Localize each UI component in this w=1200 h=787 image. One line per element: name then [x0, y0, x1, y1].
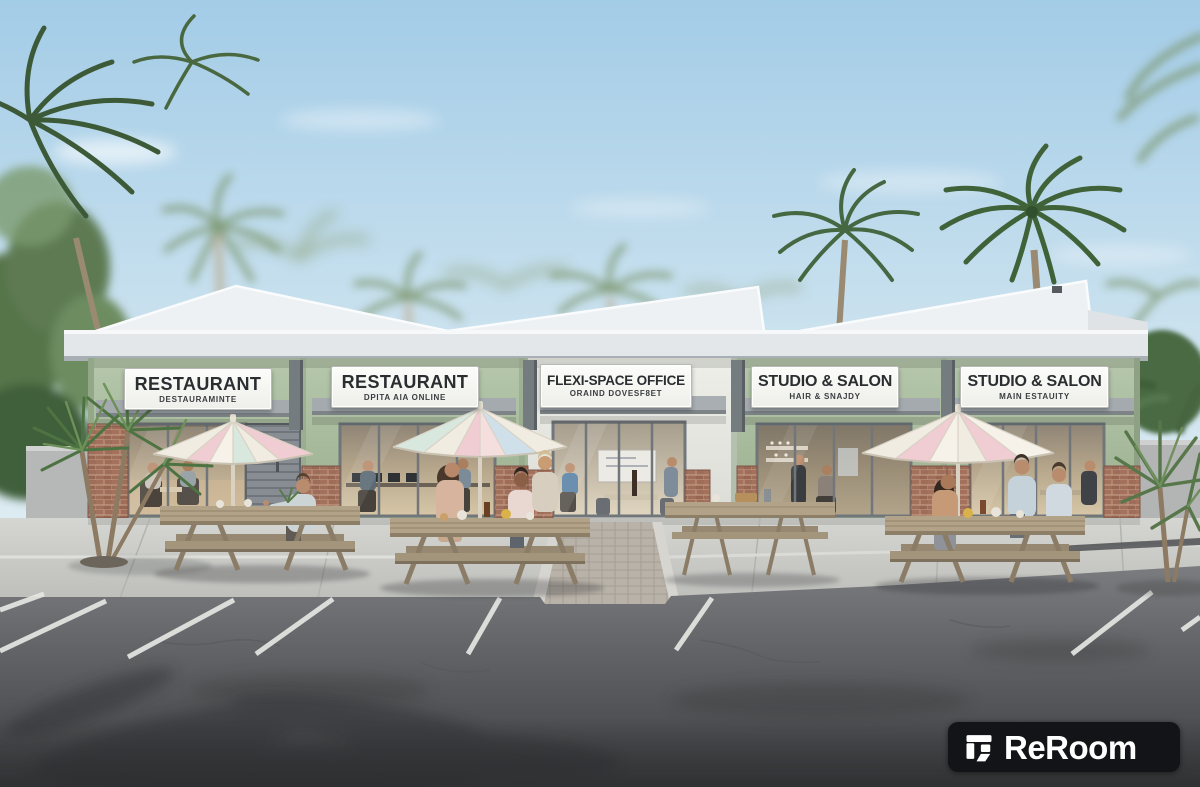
strip-mall-exterior-render: RESTAURANT DESTAURAMINTE RESTAURANT DPIT…: [0, 0, 1200, 787]
watermark-label: ReRoom: [1004, 731, 1137, 764]
sign-title: RESTAURANT: [135, 375, 262, 393]
storefront-sign-flexi-space-office: FLEXI-SPACE OFFICE ORAIND DOVESF8ET: [540, 364, 692, 408]
storefront-sign-restaurant-1: RESTAURANT DESTAURAMINTE: [124, 368, 272, 410]
sign-subtitle: DESTAURAMINTE: [159, 396, 237, 404]
sign-title: FLEXI-SPACE OFFICE: [547, 374, 685, 388]
storefront-sign-studio-salon-1: STUDIO & SALON HAIR & SNAJDY: [751, 366, 899, 408]
sign-title: STUDIO & SALON: [758, 374, 892, 390]
sign-subtitle: MAIN ESTAUITY: [999, 393, 1070, 401]
sign-title: RESTAURANT: [342, 373, 469, 391]
sign-subtitle: DPITA AIA ONLINE: [364, 394, 446, 402]
sign-subtitle: HAIR & SNAJDY: [789, 393, 860, 401]
sign-subtitle: ORAIND DOVESF8ET: [570, 390, 663, 398]
storefront-sign-restaurant-2: RESTAURANT DPITA AIA ONLINE: [331, 366, 479, 408]
reroom-watermark-badge: ReRoom: [948, 722, 1180, 772]
reroom-logo-icon: [964, 732, 994, 762]
storefront-bay-3: [540, 422, 685, 516]
storefront-sign-studio-salon-2: STUDIO & SALON MAIN ESTAUITY: [960, 366, 1109, 408]
sign-title: STUDIO & SALON: [967, 374, 1101, 390]
